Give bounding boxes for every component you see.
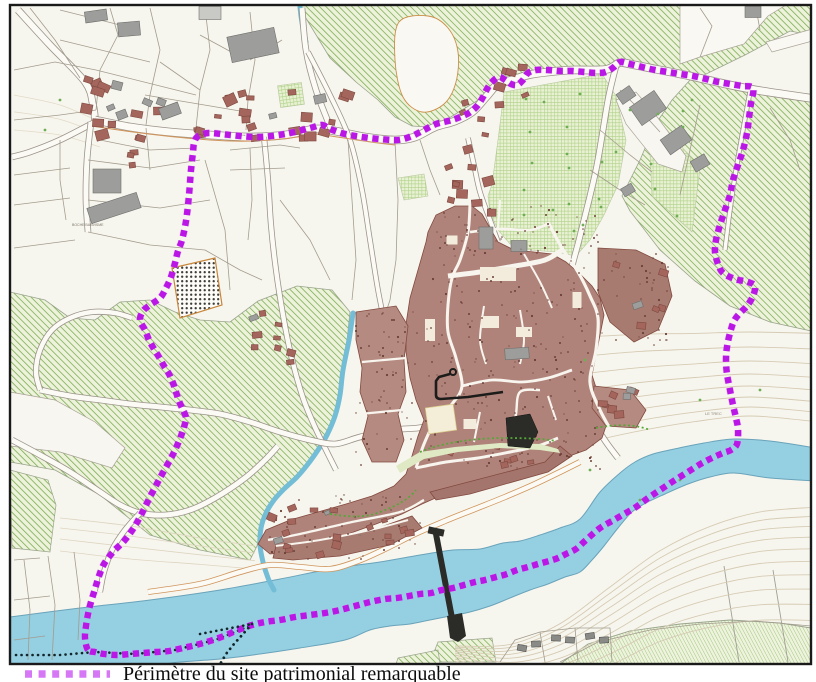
svg-text:rte: rte [358,533,362,537]
svg-text:LE TREC: LE TREC [705,411,722,416]
svg-text:Périmètre du site patrimonial: Périmètre du site patrimonial remarquabl… [123,663,461,682]
svg-text:le: le [520,247,523,251]
svg-text:BOCHE BANVISME: BOCHE BANVISME [72,223,104,227]
